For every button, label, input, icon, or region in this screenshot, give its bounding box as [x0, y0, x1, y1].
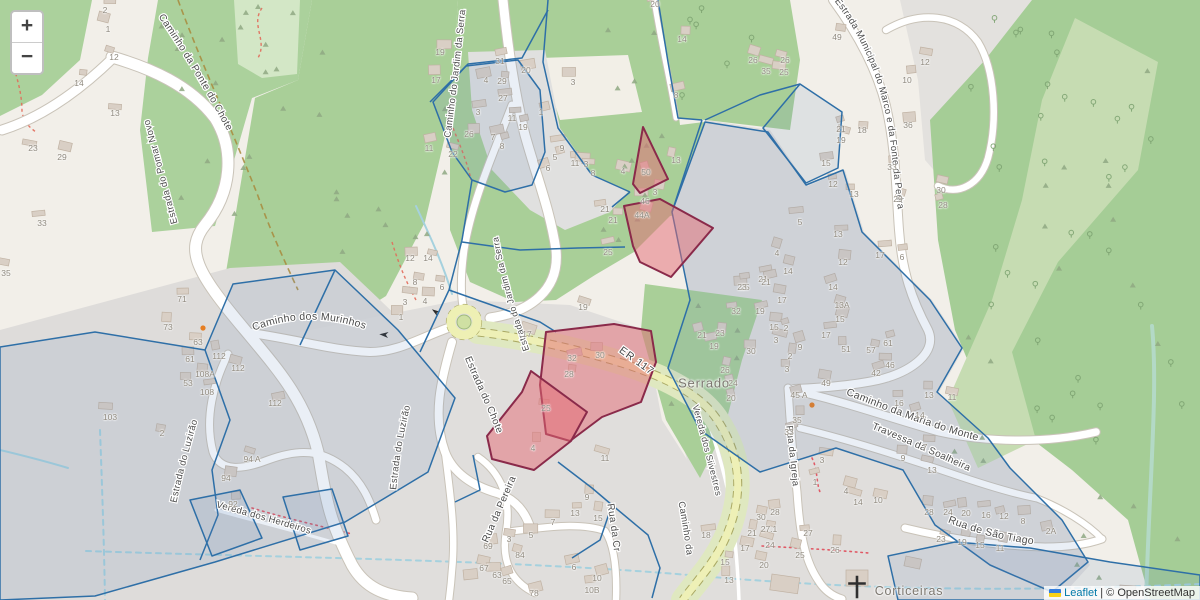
- turning-circle-icon: [200, 325, 205, 330]
- attribution-separator: |: [1100, 587, 1103, 599]
- zoom-in-button[interactable]: +: [12, 12, 42, 43]
- zoom-out-button[interactable]: −: [12, 43, 42, 73]
- ukraine-flag-icon: [1049, 589, 1061, 597]
- roundabout: [447, 305, 482, 340]
- attribution-bar: Leaflet | © OpenStreetMap: [1044, 586, 1200, 600]
- leaflet-link[interactable]: Leaflet: [1064, 587, 1097, 599]
- osm-link[interactable]: © OpenStreetMap: [1106, 587, 1195, 599]
- zoom-control: + −: [10, 10, 44, 75]
- map-canvas[interactable]: Caminho da Ponte do Chote Estrada do Pom…: [0, 0, 1200, 600]
